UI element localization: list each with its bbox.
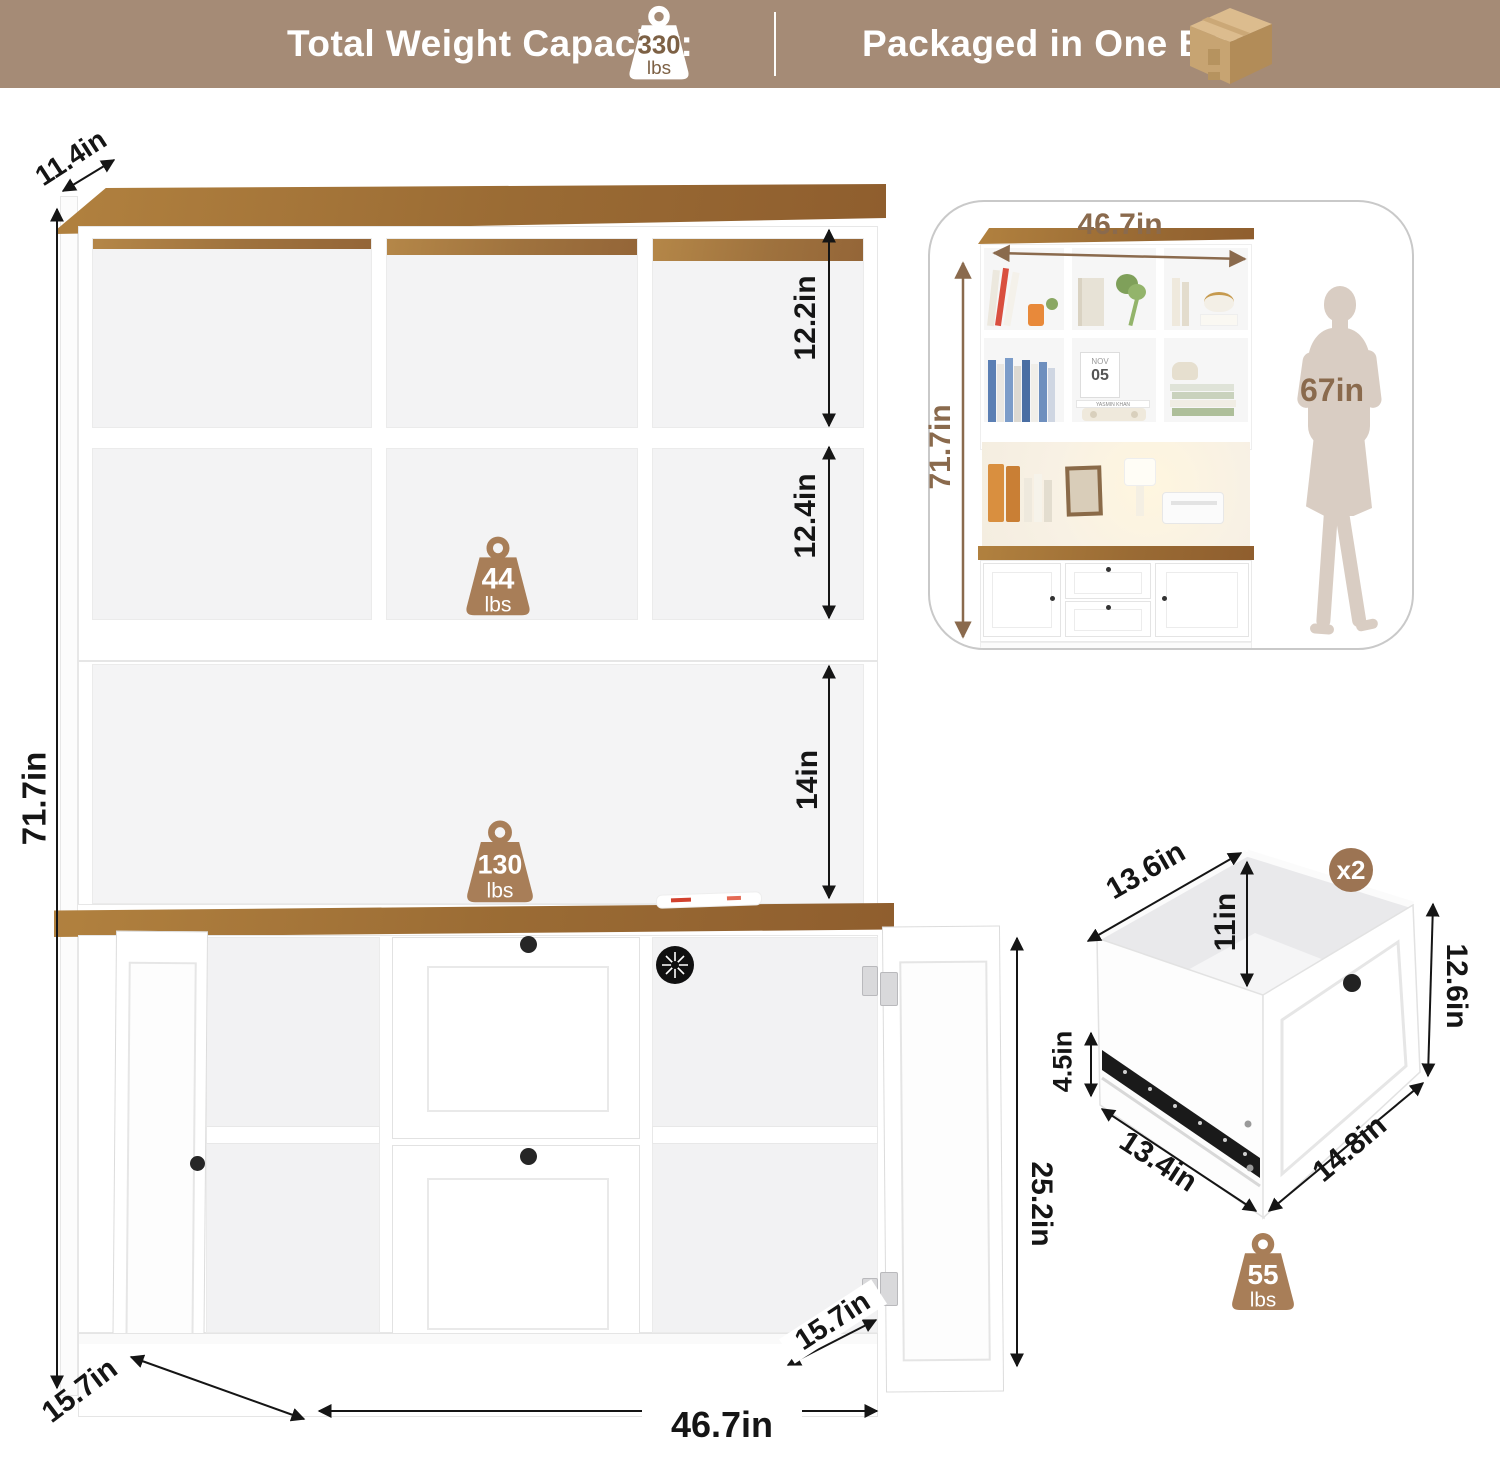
dim-drawer-front-height: 12.6in — [1441, 928, 1471, 1044]
drawer-capacity-unit: lbs — [1250, 1288, 1276, 1311]
counter-capacity-unit: lbs — [487, 879, 514, 902]
shelf-capacity-value: 44 — [482, 563, 515, 596]
dim-drawer-rail-height: 4.5in — [1050, 1017, 1077, 1107]
scale-comparison-card: NOV 05 YASMIN KHAN — [928, 200, 1414, 650]
shelf-edge — [78, 660, 878, 662]
counter-capacity-value: 130 — [478, 850, 523, 880]
mini-book-title: YASMIN KHAN — [1076, 400, 1150, 408]
unit-left-side-panel — [60, 196, 78, 1396]
card-width-label: 46.7in — [1048, 210, 1192, 240]
mini-calendar-day: 05 — [1081, 367, 1119, 385]
dim-total-width: 46.7in — [642, 1405, 802, 1445]
drawer-capacity-value: 55 — [1247, 1259, 1278, 1290]
counter-weight-icon: 130 lbs — [452, 820, 548, 908]
mini-cubby — [984, 248, 1064, 330]
mini-countertop — [978, 546, 1254, 560]
dim-cubby-top: 12.2in — [791, 260, 821, 376]
cubby-top-right — [652, 238, 864, 428]
dim-door-opening: 25.2in — [1026, 1146, 1056, 1262]
person-height-label: 67in — [1297, 374, 1367, 406]
mini-cubby — [1164, 248, 1248, 330]
right-door-open — [882, 925, 1004, 1392]
dim-open-shelf: 14in — [793, 722, 823, 838]
box-icon — [1178, 2, 1282, 86]
door-hinge-top — [880, 972, 898, 1006]
shelf-weight-icon: 44 lbs — [452, 536, 544, 621]
cabinet-drawer-front-top — [392, 937, 640, 1139]
mini-cubby — [1072, 248, 1156, 330]
shelf-capacity-unit: lbs — [484, 594, 511, 617]
cubby-mid-right — [652, 448, 864, 620]
drawer-weight-icon: 55 lbs — [1218, 1232, 1308, 1316]
banner-divider — [774, 12, 776, 76]
dim-top-depth: 11.4in — [26, 122, 117, 195]
dim-total-height: 71.7in — [18, 741, 51, 857]
person-silhouette — [1264, 286, 1414, 650]
quantity-badge: x2 — [1329, 848, 1373, 892]
drawer-knob-bottom — [520, 1148, 537, 1165]
cabinet-left-shelf — [206, 1126, 380, 1144]
mini-open-area — [982, 442, 1250, 546]
cable-hole-icon — [656, 946, 694, 984]
dim-drawer-inner-height: 11in — [1211, 877, 1241, 967]
cubby-top-left — [92, 238, 372, 428]
infographic-root: Total Weight Capacity: 330 lbs Packaged … — [0, 0, 1500, 1467]
cabinet-right-shelf — [652, 1126, 878, 1144]
banner-capacity-unit: lbs — [647, 58, 671, 79]
mini-cubby: NOV 05 YASMIN KHAN — [1072, 338, 1156, 422]
mini-cubby — [984, 338, 1064, 422]
card-height-label: 71.7in — [926, 389, 956, 505]
drawer-knob-top — [520, 936, 537, 953]
top-banner: Total Weight Capacity: 330 lbs Packaged … — [0, 0, 1500, 88]
dim-cubby-mid: 12.4in — [791, 458, 821, 574]
left-door-knob — [190, 1156, 205, 1171]
mini-cubby — [1164, 338, 1248, 422]
hinge-top — [862, 966, 878, 996]
cubby-mid-left — [92, 448, 372, 620]
mini-base — [980, 642, 1252, 650]
cabinet-drawer-front-bottom — [392, 1145, 640, 1357]
mini-cabinet — [980, 560, 1252, 642]
cubby-top-middle — [386, 238, 638, 428]
weight-icon: 330 lbs — [616, 5, 702, 85]
mini-calendar-month: NOV — [1081, 357, 1119, 367]
banner-capacity-value: 330 — [637, 32, 680, 60]
